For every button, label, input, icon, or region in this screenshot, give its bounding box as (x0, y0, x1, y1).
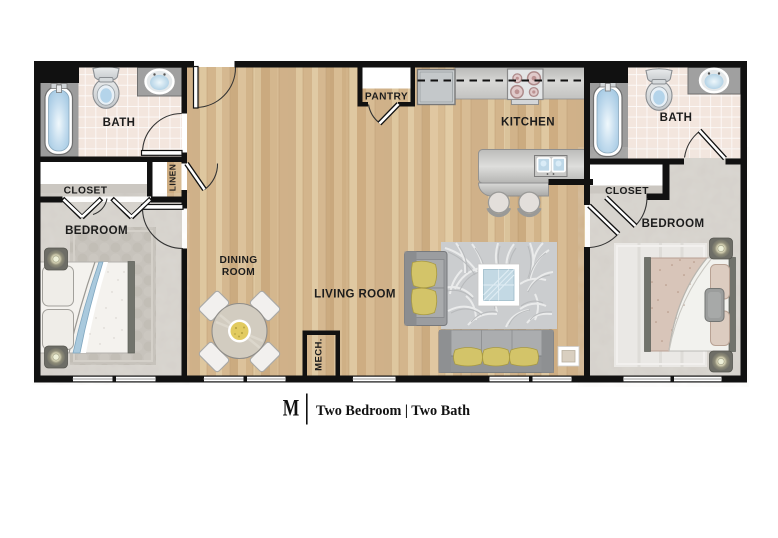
svg-text:Two Bedroom | Two Bath: Two Bedroom | Two Bath (316, 403, 470, 419)
svg-text:LIVING ROOM: LIVING ROOM (314, 289, 396, 301)
svg-text:MECH.: MECH. (314, 338, 325, 371)
svg-text:BEDROOM: BEDROOM (642, 218, 705, 230)
svg-text:BATH: BATH (660, 112, 693, 124)
svg-text:DINING: DINING (219, 255, 257, 266)
svg-text:M: M (283, 396, 300, 422)
svg-text:CLOSET: CLOSET (605, 186, 649, 197)
svg-text:BATH: BATH (103, 117, 136, 129)
svg-text:KITCHEN: KITCHEN (501, 117, 555, 129)
svg-text:ROOM: ROOM (222, 267, 255, 278)
svg-text:LINEN: LINEN (168, 164, 178, 192)
svg-text:PANTRY: PANTRY (365, 92, 408, 103)
svg-text:BEDROOM: BEDROOM (65, 225, 128, 237)
svg-text:CLOSET: CLOSET (64, 186, 108, 197)
